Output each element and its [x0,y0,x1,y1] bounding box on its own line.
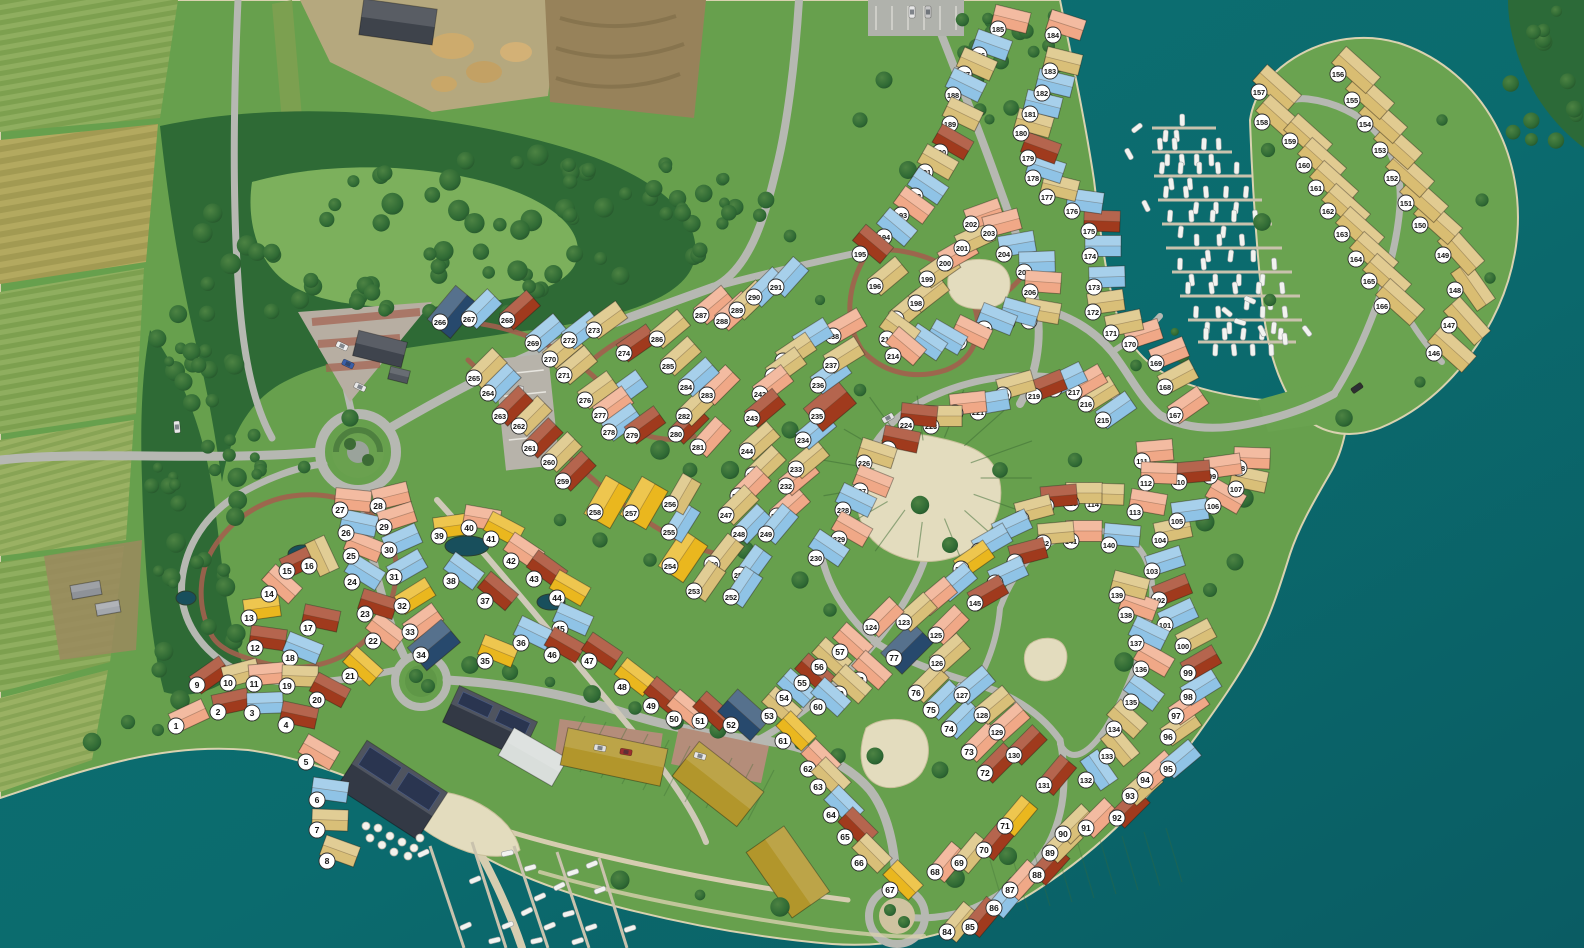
house-number-badge: 71 [997,818,1013,834]
house-number-badge: 131 [1036,777,1052,793]
tree [168,578,178,588]
tree [153,565,164,576]
svg-text:84: 84 [942,927,952,937]
house-number-badge: 112 [1138,475,1154,491]
house-number-badge: 279 [624,427,640,443]
house-number-badge: 195 [852,246,868,262]
boat [1251,250,1256,262]
house-number-badge: 72 [977,765,993,781]
svg-text:237: 237 [825,361,837,370]
house-number-badge: 290 [746,289,762,305]
svg-text:249: 249 [760,530,772,539]
house-number-badge: 75 [923,702,939,718]
tree [1171,328,1179,336]
tree [791,571,808,588]
svg-text:126: 126 [931,659,943,668]
house-number-badge: 41 [483,531,499,547]
parking-north [868,0,964,36]
svg-text:73: 73 [964,747,974,757]
svg-text:230: 230 [810,554,822,563]
house-number-badge: 46 [544,647,560,663]
boat [1201,258,1207,270]
house-number-badge: 60 [810,699,826,715]
tree [377,165,393,181]
house-number-badge: 136 [1133,661,1149,677]
tree [328,198,341,211]
svg-text:180: 180 [1015,129,1027,138]
house-number-badge: 174 [1082,248,1098,264]
boat [1163,186,1169,198]
house-number-badge: 254 [662,558,678,574]
svg-text:32: 32 [397,601,407,611]
boat [1194,234,1199,246]
svg-text:169: 169 [1150,359,1162,368]
terrace-parasol [386,832,394,840]
tree [758,192,775,209]
house-number-badge: 47 [581,653,597,669]
house-number-badge: 9 [189,677,205,693]
house-number-badge: 37 [477,593,493,609]
svg-text:234: 234 [797,436,810,445]
svg-text:255: 255 [663,528,675,537]
house-number-badge: 34 [413,647,429,663]
boat [1282,333,1288,345]
boat [1256,282,1262,294]
house-number-badge: 258 [587,504,603,520]
boat [1250,344,1256,356]
house-number-badge: 163 [1334,226,1350,242]
tree [660,161,672,173]
house-number-badge: 280 [668,426,684,442]
svg-text:37: 37 [480,596,490,606]
tree [170,495,186,511]
svg-text:36: 36 [516,638,526,648]
car [925,6,931,18]
house-number-badge: 126 [929,655,945,671]
house-number-badge: 146 [1426,345,1442,361]
svg-text:254: 254 [664,562,677,571]
house-number-badge: 183 [1042,63,1058,79]
house-number-badge: 15 [279,563,295,579]
svg-text:20: 20 [312,695,322,705]
svg-text:128: 128 [976,711,988,720]
house-number-badge: 40 [461,520,477,536]
house-number-badge: 161 [1308,180,1324,196]
house-number-badge: 103 [1144,563,1160,579]
house-number-badge: 170 [1122,336,1138,352]
house-number-badge: 24 [344,574,360,590]
svg-text:27: 27 [335,505,345,515]
house-number-badge: 16 [301,558,317,574]
tree [911,496,929,514]
house-number-badge: 287 [693,307,709,323]
tree [581,163,595,177]
boat [1197,162,1202,174]
house-number-badge: 257 [623,505,639,521]
boat [1279,282,1285,294]
svg-text:52: 52 [726,720,736,730]
house-number-badge: 32 [394,598,410,614]
house-number-badge: 129 [989,724,1005,740]
house-number-badge: 65 [837,829,853,845]
house-number-badge: 243 [744,410,760,426]
svg-text:96: 96 [1163,732,1173,742]
svg-text:44: 44 [552,593,562,603]
tree [1028,46,1040,58]
boat [1188,210,1194,222]
svg-text:124: 124 [865,623,878,632]
tree [1068,453,1082,467]
svg-text:135: 135 [1125,698,1137,707]
boat [1223,186,1229,198]
tree [815,295,825,305]
svg-text:105: 105 [1171,517,1183,526]
svg-text:267: 267 [463,315,475,324]
boat [1203,328,1208,340]
tree [1502,75,1518,91]
svg-text:13: 13 [244,613,254,623]
sand-area [1024,638,1066,681]
tree [223,449,236,462]
house-number-badge: 263 [492,408,508,424]
svg-text:55: 55 [797,678,807,688]
svg-text:139: 139 [1111,591,1123,600]
svg-text:89: 89 [1045,848,1055,858]
tree [144,478,159,493]
svg-text:51: 51 [695,716,705,726]
house-number-badge: 25 [343,548,359,564]
house-number-badge: 289 [729,302,745,318]
svg-text:166: 166 [1376,302,1388,311]
svg-text:290: 290 [748,293,760,302]
tree [151,662,166,677]
tree [217,563,230,576]
house-number-badge: 148 [1447,282,1463,298]
svg-text:34: 34 [416,650,426,660]
terrace-parasol [398,838,406,846]
boat [1240,328,1246,340]
pond [176,591,196,605]
house-number-badge: 95 [1160,761,1176,777]
tree [264,304,280,320]
tree [201,619,217,635]
house-number-badge: 206 [1022,284,1038,300]
terrace-parasol [404,852,412,860]
tree [166,533,186,553]
house-number-badge: 39 [431,528,447,544]
site-plan-stage: 1234567891011121314151617181920212223242… [0,0,1584,948]
tree [225,355,245,375]
terrace-parasol [410,844,418,852]
house-number-badge: 92 [1109,810,1125,826]
svg-text:280: 280 [670,430,682,439]
tree [544,265,562,283]
svg-text:198: 198 [910,299,922,308]
tree [594,198,614,218]
svg-text:236: 236 [812,381,824,390]
svg-text:159: 159 [1284,137,1296,146]
boat [1215,162,1221,174]
boat [1260,306,1265,318]
svg-text:138: 138 [1120,611,1132,620]
tree [692,242,707,257]
house-number-badge: 236 [810,377,826,393]
tree [224,434,236,446]
house-number-badge: 160 [1296,157,1312,173]
boat [1172,138,1178,150]
house-number-badge: 84 [939,924,955,940]
house-number-badge: 53 [761,708,777,724]
house-number-badge: 31 [386,569,402,585]
boat [1201,138,1207,150]
svg-text:1: 1 [174,721,179,731]
house-number-badge: 235 [809,408,825,424]
house-number-badge: 36 [513,635,529,651]
house-number-badge: 20 [309,692,325,708]
house-number-badge: 259 [555,473,571,489]
house-number-badge: 150 [1412,217,1428,233]
boat [1212,344,1218,356]
svg-text:53: 53 [764,711,774,721]
svg-text:168: 168 [1159,383,1171,392]
house-number-badge: 281 [690,439,706,455]
svg-text:199: 199 [921,275,933,284]
house-number-badge: 70 [976,842,992,858]
svg-text:171: 171 [1105,329,1117,338]
house-number-badge: 172 [1085,304,1101,320]
svg-text:277: 277 [594,411,606,420]
house-number-badge: 154 [1357,116,1373,132]
house-number-badge: 249 [758,526,774,542]
svg-text:137: 137 [1130,639,1142,648]
svg-text:39: 39 [434,531,444,541]
house-number-badge: 261 [522,440,538,456]
tree [423,247,436,260]
svg-text:69: 69 [954,858,964,868]
svg-text:201: 201 [956,244,968,253]
svg-text:85: 85 [965,922,975,932]
svg-text:154: 154 [1359,120,1372,129]
tree [191,358,206,373]
house-number-badge: 149 [1435,247,1451,263]
tree [193,223,213,243]
svg-text:104: 104 [1154,536,1167,545]
svg-text:74: 74 [944,724,954,734]
svg-text:43: 43 [529,574,539,584]
house-number-badge: 215 [1095,412,1111,428]
svg-text:71: 71 [1000,821,1010,831]
svg-text:6: 6 [315,795,320,805]
house-number-badge: 203 [981,225,997,241]
tree [154,642,173,661]
tree [203,204,222,223]
house-number-badge: 29 [376,519,392,535]
house-number-badge: 61 [775,733,791,749]
house-number-badge: 145 [967,595,983,611]
svg-text:28: 28 [373,501,383,511]
boat [1183,186,1189,198]
tree [866,747,883,764]
tree [228,468,247,487]
house-number-badge: 12 [247,640,263,656]
tree [563,174,577,188]
car [173,421,180,433]
house-number-badge: 18 [282,650,298,666]
tree [1560,73,1576,89]
tree [566,245,583,262]
tree [1003,100,1019,116]
svg-text:232: 232 [780,482,792,491]
svg-text:145: 145 [969,599,981,608]
house-number-badge: 4 [278,717,294,733]
boat [1243,186,1249,198]
house-number-badge: 19 [279,678,295,694]
tree [1130,360,1142,372]
svg-text:261: 261 [524,444,536,453]
svg-text:161: 161 [1310,184,1322,193]
house-number-badge: 230 [808,550,824,566]
tree [784,230,797,243]
svg-text:140: 140 [1103,541,1115,550]
svg-text:247: 247 [720,511,732,520]
tree [364,284,381,301]
house-number-badge: 140 [1101,537,1117,553]
boat [1222,328,1228,340]
house-number-badge: 237 [823,357,839,373]
tree [174,373,192,391]
boat [1216,138,1222,150]
svg-text:46: 46 [547,650,557,660]
house-number-badge: 151 [1398,195,1414,211]
svg-text:157: 157 [1253,88,1265,97]
tree [645,180,662,197]
terrace-parasol [362,822,370,830]
svg-text:257: 257 [625,509,637,518]
boat [1232,282,1238,295]
tree [554,514,566,526]
tree [83,733,102,752]
pond [445,536,489,556]
house-number-badge: 130 [1006,747,1022,763]
tree [349,294,365,310]
house-number-badge: 168 [1157,379,1173,395]
svg-text:156: 156 [1332,70,1344,79]
house-number-badge: 74 [941,721,957,737]
svg-text:256: 256 [664,500,676,509]
svg-text:170: 170 [1124,340,1136,349]
tree [753,209,766,222]
boat [1282,306,1288,318]
house-number-badge: 284 [678,379,694,395]
svg-text:164: 164 [1350,255,1363,264]
tree [431,259,447,275]
house-number-badge: 104 [1152,532,1168,548]
boat [1168,178,1174,191]
tree [1203,583,1217,597]
house-number-badge: 127 [954,687,970,703]
svg-text:8: 8 [325,856,330,866]
house-number-badge: 56 [811,659,827,675]
house-number-badge: 124 [863,619,879,635]
svg-text:288: 288 [716,317,728,326]
svg-text:87: 87 [1005,885,1015,895]
house-number-badge: 198 [908,295,924,311]
svg-text:182: 182 [1036,89,1048,98]
tree [303,273,318,288]
svg-text:149: 149 [1437,251,1449,260]
tree [650,440,670,460]
tree [424,187,440,203]
house-number-badge: 107 [1228,481,1244,497]
boat [1167,210,1173,222]
house-number-badge: 134 [1106,721,1122,737]
house-number-badge: 135 [1123,694,1139,710]
svg-text:173: 173 [1088,283,1100,292]
svg-text:276: 276 [579,396,591,405]
tree [341,409,358,426]
tree [619,187,632,200]
house-number-badge: 196 [867,278,883,294]
house-number-badge: 173 [1086,279,1102,295]
house-number-badge: 276 [577,392,593,408]
tree [718,173,730,185]
boat [1159,162,1165,174]
terrace-parasol [366,834,374,842]
house-number-badge: 178 [1025,170,1041,186]
svg-text:167: 167 [1169,411,1181,420]
svg-text:243: 243 [746,414,758,423]
boat [1269,344,1275,356]
house-number-badge: 286 [649,331,665,347]
svg-text:272: 272 [563,336,575,345]
house-number-badge: 26 [338,525,354,541]
svg-text:260: 260 [543,458,555,467]
svg-text:54: 54 [779,693,789,703]
svg-text:204: 204 [998,250,1011,259]
tree [854,384,867,397]
tree [1226,553,1243,570]
house-number-badge: 288 [714,313,730,329]
tree [226,508,244,526]
svg-text:38: 38 [446,576,456,586]
tree [1114,652,1133,671]
svg-text:130: 130 [1008,751,1020,760]
svg-text:270: 270 [544,355,556,364]
house-number-badge: 113 [1127,504,1143,520]
svg-text:271: 271 [558,371,570,380]
svg-text:57: 57 [835,647,845,657]
terrace-parasol [378,841,386,849]
house-number-badge: 89 [1042,845,1058,861]
house-number-badge: 90 [1055,826,1071,842]
house-number-badge: 233 [788,461,804,477]
boat [1157,138,1163,150]
boat [1231,210,1236,222]
house-number-badge: 266 [432,314,448,330]
boat [1203,186,1209,198]
svg-text:185: 185 [992,25,1004,34]
svg-text:33: 33 [405,627,415,637]
svg-text:284: 284 [680,383,693,392]
tree [347,175,359,187]
svg-text:285: 285 [662,362,674,371]
house-number-badge: 97 [1168,708,1184,724]
tree [1261,143,1275,157]
house-number-badge: 166 [1374,298,1390,314]
house-number-badge: 265 [466,370,482,386]
tree [183,394,201,412]
tree [695,890,706,901]
